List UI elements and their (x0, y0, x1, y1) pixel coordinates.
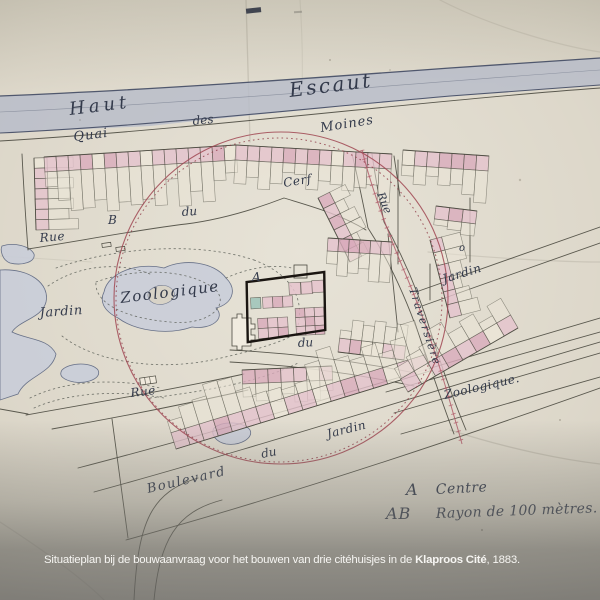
rue-cerf-rue-label: Rue (38, 229, 65, 245)
marker-b: B (107, 213, 117, 227)
marker-o: o (459, 243, 465, 254)
quai-des-label: des (192, 112, 214, 128)
photographed-map-page: Haut Escaut Quai des Moines Rue B du Cer… (0, 0, 600, 600)
photo-shadow (0, 420, 600, 600)
rue-cerf-du-label: du (181, 204, 197, 219)
du-mid-label: du (297, 335, 313, 350)
park-jardin-label: Jardin (36, 303, 83, 321)
caption-before: Situatieplan bij de bouwaanvraag voor he… (44, 554, 415, 566)
caption-after: , 1883. (487, 554, 520, 566)
marker-a-centre: A (251, 270, 261, 284)
caption: Situatieplan bij de bouwaanvraag voor he… (44, 554, 520, 566)
map-photo: Haut Escaut Quai des Moines Rue B du Cer… (0, 0, 600, 600)
caption-highlight: Klaproos Cité (415, 554, 486, 566)
